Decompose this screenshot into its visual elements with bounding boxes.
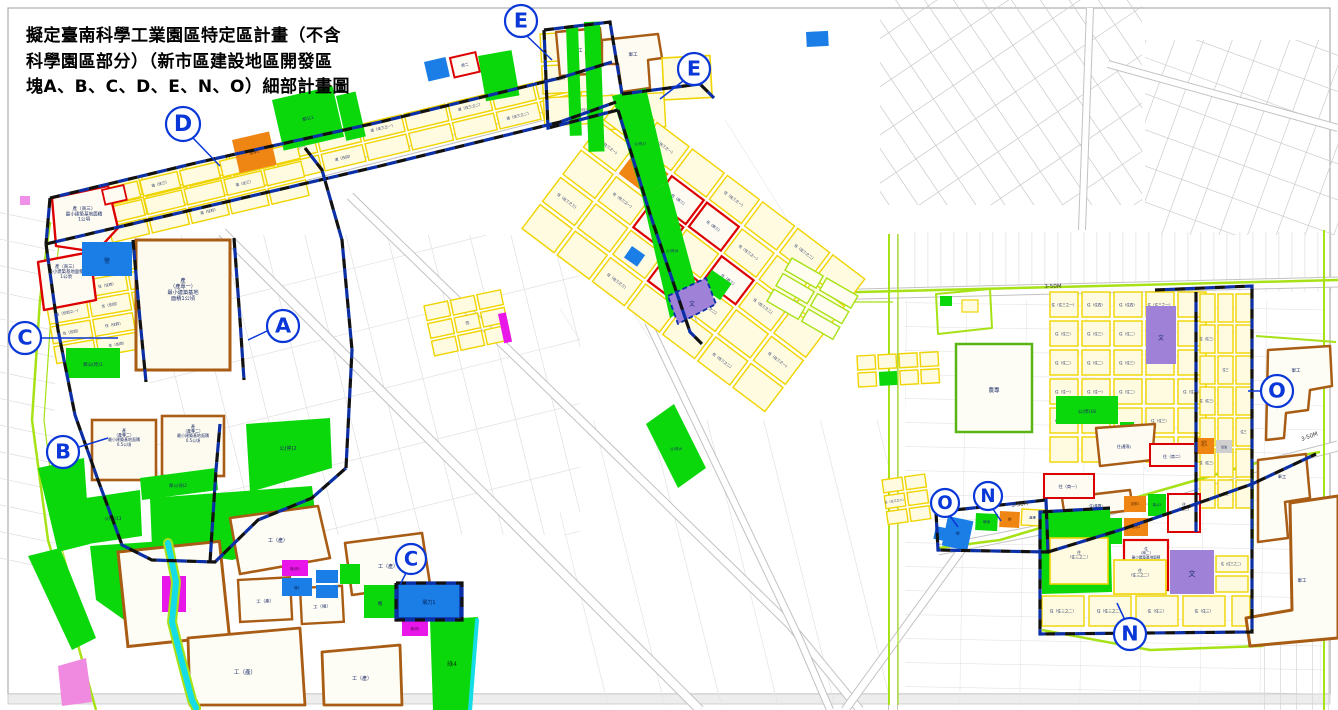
zone-green-s1 <box>340 564 360 584</box>
map-title-line2: 科學園區部分）（新市區建設地區開發區 <box>26 50 486 76</box>
parcel-cell <box>1236 294 1251 322</box>
parcel-label: 住（住三） <box>1200 336 1216 341</box>
parcel-label: 住三 <box>1222 367 1228 372</box>
zone-label-ind-6: 工（產） <box>234 668 256 676</box>
zone-label-ns-orange: 停 <box>1007 516 1011 522</box>
area-marker-letter: N <box>980 486 995 507</box>
area-marker-letter: C <box>17 326 32 350</box>
parcel-cell <box>1236 356 1251 384</box>
parcel-cell <box>1200 356 1215 384</box>
parcel-cell <box>1236 325 1251 353</box>
parcel-label: 住（住一） <box>1087 389 1105 394</box>
parcel-label: 住（住三之二） <box>1221 561 1243 566</box>
zone-label-ind-2: 工（產） <box>268 537 288 544</box>
parcel-cell <box>879 371 898 386</box>
parcel-label: 住（住二） <box>1087 360 1105 365</box>
parcel-label: 住（住二） <box>1119 331 1137 336</box>
parcel-label: 住（住三） <box>1195 608 1214 613</box>
parcel-cell <box>1050 437 1078 462</box>
plan-map: 道（住三）道（住三之一）道（住三之一）道（住三之一）道（住三之二）道（住三）道（… <box>0 0 1338 710</box>
zone-pink-nw <box>20 196 30 205</box>
zone-label-o-orange-top: 加停(停)1 <box>1201 440 1208 447</box>
parcel-cell <box>905 474 927 490</box>
zone-label-elec-green: 機 <box>378 600 383 607</box>
parcel-cell <box>920 352 939 367</box>
area-marker-letter: C <box>404 547 418 570</box>
zone-label-o-gray-top: 加油 <box>1221 445 1227 449</box>
zone-label-ind-3: 工（產） <box>378 563 398 570</box>
parcel-label: 住（住三） <box>1119 360 1137 365</box>
area-marker-letter: N <box>1121 622 1138 646</box>
parcel-label: 住（住三之一） <box>1051 302 1076 307</box>
parcel-grid: 住（住三）住三住（住三）住三住（住三）住三 <box>1200 294 1251 508</box>
zone-blue-s3 <box>316 585 338 598</box>
road-label: 3-50M <box>1044 284 1062 290</box>
zone-label-green-nk2: 鄰公(停)2 <box>169 482 187 488</box>
area-marker-letter: O <box>937 493 952 514</box>
zone-sc-yellow <box>962 300 978 312</box>
zone-label-e-green3: 公(停)9 <box>670 446 683 451</box>
parcel-cell <box>1216 576 1248 592</box>
parcel-label: 住（住二） <box>1183 389 1201 394</box>
parcel-label: 住（住四） <box>1087 302 1105 307</box>
zone-brown-a <box>136 240 230 370</box>
parcel-cell <box>882 477 904 493</box>
parcel-cell <box>1200 294 1215 322</box>
zone-label-ind-7: 工（產） <box>352 675 372 682</box>
zone-label-o-brown1: 住(產專) <box>1117 444 1132 449</box>
zone-label-blue-s1: 機1 <box>294 585 300 590</box>
parcel-label: 住三 <box>1240 429 1246 434</box>
zone-label-mil-e2: 軍工 <box>629 52 638 58</box>
zone-label-o-green16: 公(停)16 <box>1078 408 1096 415</box>
area-marker-letter: E <box>514 9 528 33</box>
zone-label-e-green1: 公(停)7 <box>634 141 646 146</box>
parcel-cell <box>921 369 940 384</box>
zone-label-blue-c: 警 <box>104 257 110 265</box>
map-title-line3: 塊A、B、C、D、E、N、O）細部計畫圖 <box>26 75 486 101</box>
zone-label-o-red1: 住（商一） <box>1059 483 1080 490</box>
zone-label-elec: 電力1 <box>422 599 435 606</box>
zone-label-agri: 農專 <box>988 386 1000 394</box>
zone-label-e-purple: 文 <box>689 300 695 308</box>
parcel-label: 住（住三） <box>1200 398 1216 403</box>
zone-group: 停 <box>999 511 1020 528</box>
area-marker-letter: A <box>275 314 291 338</box>
parcel-cell <box>1218 449 1233 477</box>
parcel-label: 住（住三） <box>1087 331 1105 336</box>
parcel-cell <box>858 372 877 387</box>
zone-label-o-purple: 文 <box>1158 334 1164 342</box>
zone-label-o-orange1: 加停2 <box>1131 501 1140 506</box>
zone-group: 環停 <box>975 513 998 531</box>
parcel-cell <box>1236 449 1251 477</box>
zone-label-mag-1: 機(停) <box>290 566 300 571</box>
zone-label-ns-green: 環停 <box>983 519 991 524</box>
parcel-cell <box>1218 387 1233 415</box>
zone-group <box>806 31 829 47</box>
parcel-cell <box>1200 480 1215 508</box>
zone-pink-sw <box>58 658 92 706</box>
zone-label-mil-1: 軍工 <box>1292 368 1301 374</box>
parcel-label: 住（住三之二） <box>1050 608 1077 613</box>
parcel-label: 住（住四） <box>1119 302 1137 307</box>
zone-label-o-greennk3: 鄰公3 <box>1153 502 1161 507</box>
parcel-label: 住（住一） <box>1055 389 1073 394</box>
parcel-cell <box>1218 294 1233 322</box>
plan-map-svg: 道（住三）道（住三之一）道（住三之一）道（住三之一）道（住三之二）道（住三）道（… <box>0 0 1338 710</box>
parcel-cell <box>907 490 929 506</box>
zone-label-green-p2: 公(停)2 <box>279 445 296 452</box>
parcel-label: 住（住二） <box>1055 360 1073 365</box>
parcel-cell <box>886 509 908 525</box>
area-marker-letter: B <box>55 440 71 464</box>
zone-label-mag-e: 機(停) <box>411 626 420 631</box>
zone-blue-s2 <box>316 570 338 583</box>
zone-label-mil-3: 軍工 <box>1298 578 1307 584</box>
map-title: 擬定臺南科學工業園區特定區計畫（不含 科學園區部分）（新市區建設地區開發區 塊A… <box>26 24 486 101</box>
zone-label-nk1: 鄰公(停)1 <box>83 361 103 368</box>
zone-label-e-green2: 公(停)8 <box>666 248 679 253</box>
zone-sc-green <box>940 296 952 306</box>
parcel-cell <box>857 355 876 370</box>
parcel-label: 住（住三） <box>1148 608 1167 613</box>
parcel-cell <box>1218 325 1233 353</box>
parcel-cell <box>878 354 897 369</box>
zone-e-blue-ne <box>806 31 829 47</box>
parcel-label: 住（住三） <box>1055 331 1073 336</box>
parcel-label: 住（住三） <box>1151 418 1169 423</box>
zone-label-green-4: 綠4 <box>447 660 457 668</box>
zone-label-ns-yellow: 產專 <box>1029 515 1037 520</box>
parcel-label: 住（住二） <box>1119 389 1137 394</box>
zone-label-n-purple: 文 <box>1189 569 1196 578</box>
parcel-cell <box>909 506 931 522</box>
parcel-label: 住（住三） <box>1200 460 1216 465</box>
zone-label-o-red2: 住（商二） <box>1163 453 1183 459</box>
parcel-cell <box>900 370 919 385</box>
parcel-cell <box>1146 379 1174 404</box>
area-marker-letter: E <box>687 57 701 81</box>
parcel-cell <box>899 353 918 368</box>
area-marker-letter: D <box>174 111 192 137</box>
zone-ind-7 <box>322 645 402 705</box>
zone-o-yellow-w <box>1050 538 1108 584</box>
area-marker-letter: O <box>1268 379 1286 403</box>
zone-ind-6 <box>188 628 305 705</box>
map-title-line1: 擬定臺南科學工業園區特定區計畫（不含 <box>26 24 486 50</box>
